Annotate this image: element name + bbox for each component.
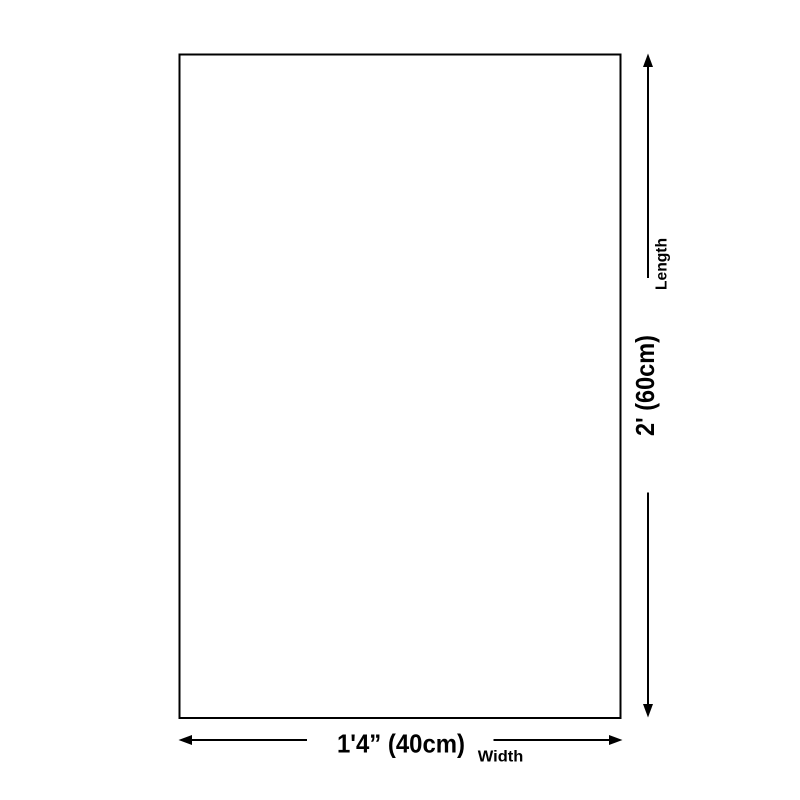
svg-text:Length: Length bbox=[654, 238, 671, 290]
svg-text:2' (60cm): 2' (60cm) bbox=[630, 335, 660, 436]
svg-text:1'4” (40cm): 1'4” (40cm) bbox=[337, 729, 465, 759]
svg-text:Width: Width bbox=[478, 749, 524, 766]
